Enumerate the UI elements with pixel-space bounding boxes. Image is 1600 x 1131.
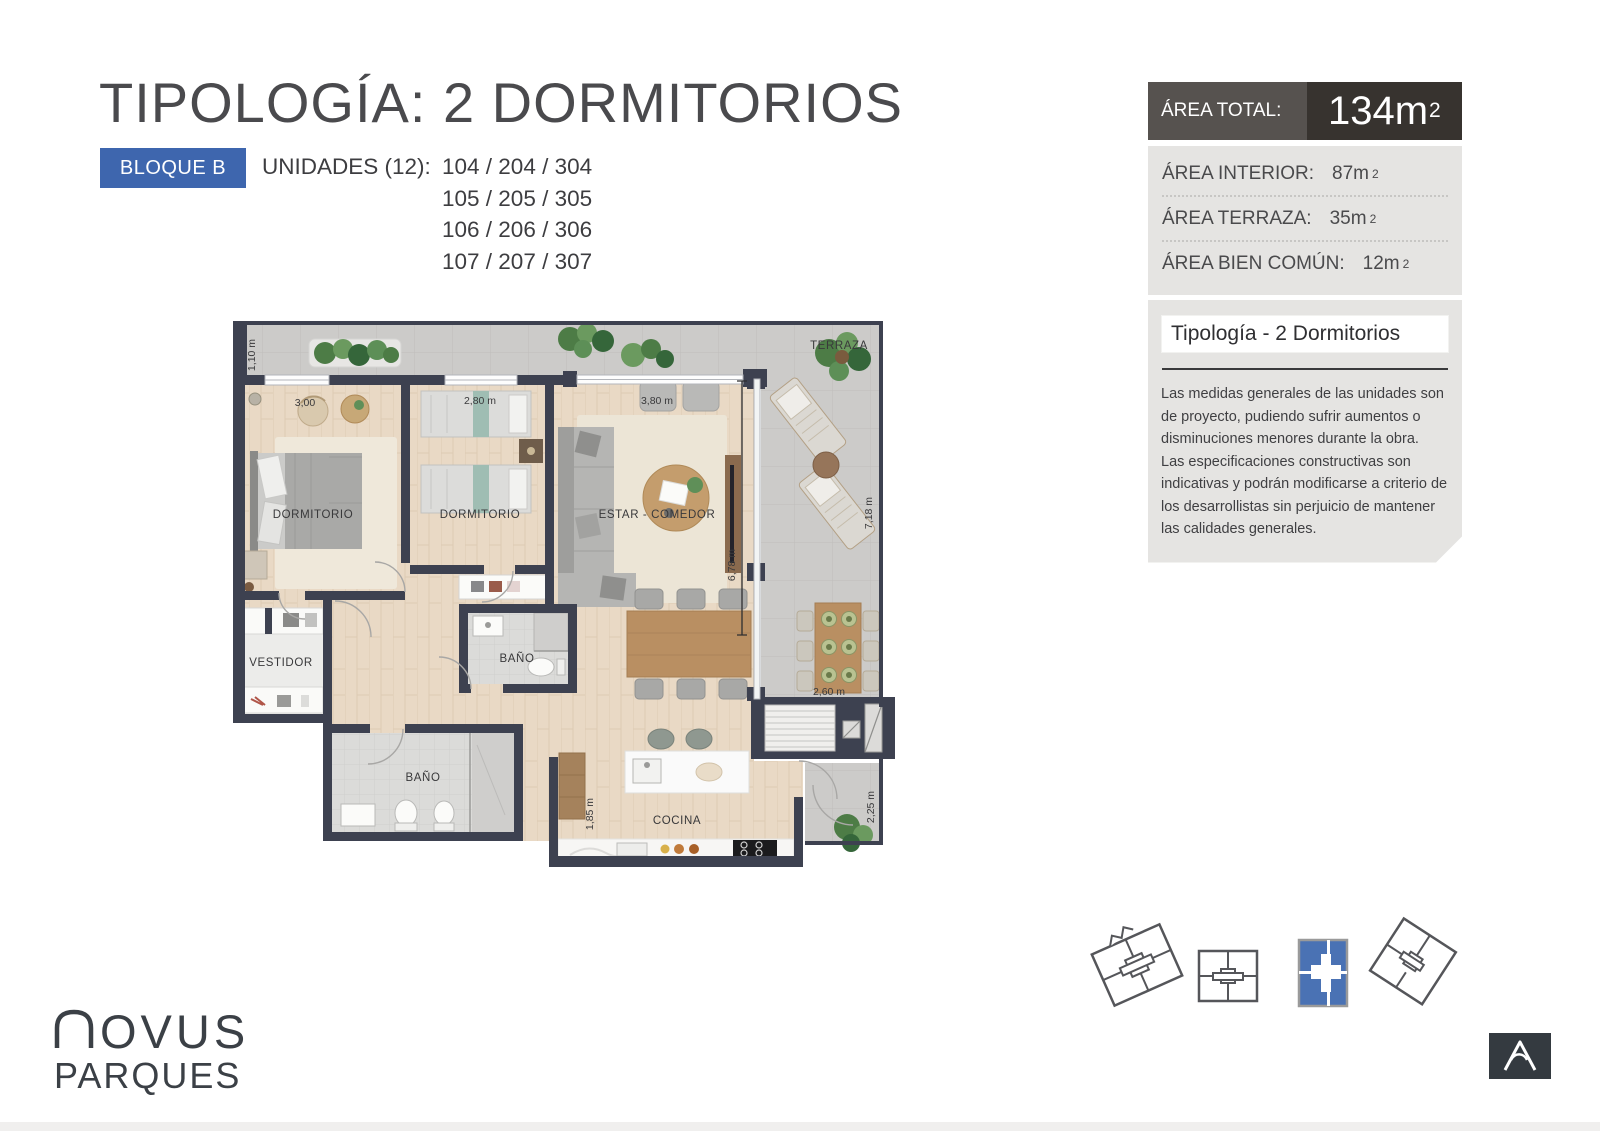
units-line: 106 / 206 / 306 bbox=[442, 214, 592, 246]
area-total-header: ÁREA TOTAL: 134m2 bbox=[1148, 82, 1462, 140]
page-edge-strip bbox=[0, 1122, 1600, 1131]
area-total-number: 134m bbox=[1328, 89, 1428, 134]
area-row-sup: 2 bbox=[1372, 167, 1379, 181]
developer-logo bbox=[1489, 1033, 1551, 1079]
disclaimer-text: Las medidas generales de las unidades so… bbox=[1161, 383, 1449, 541]
area-row-label: ÁREA INTERIOR: bbox=[1162, 163, 1314, 185]
dim-dorm2-width: 2,80 m bbox=[464, 395, 496, 407]
dim-estar-height: 6,78 m bbox=[726, 549, 738, 581]
bloque-outline-rotated-left-icon[interactable] bbox=[1082, 915, 1192, 1015]
novus-n-glyph bbox=[57, 1012, 91, 1048]
bloque-outline-upright-icon[interactable] bbox=[1196, 948, 1260, 1006]
units-line: 104 / 204 / 304 bbox=[442, 151, 592, 183]
area-total-sup: 2 bbox=[1429, 99, 1441, 123]
bloque-outline-rotated-right-icon[interactable] bbox=[1358, 915, 1468, 1015]
area-total-value: 134m2 bbox=[1307, 82, 1462, 140]
area-panel: ÁREA TOTAL: 134m2 ÁREA INTERIOR: 87m2 ÁR… bbox=[1148, 82, 1462, 295]
dim-estar-width: 3,80 m bbox=[641, 395, 673, 407]
area-row-sup: 2 bbox=[1370, 212, 1377, 226]
stairwell bbox=[751, 697, 895, 759]
room-label-bano-1: BAÑO bbox=[500, 652, 535, 665]
dim-dorm1-width: 3,00 bbox=[295, 397, 316, 409]
floorplan-drawing: TERRAZA DORMITORIO DORMITORIO ESTAR - CO… bbox=[225, 315, 905, 875]
brand-logo: OVUS PARQUES bbox=[50, 986, 270, 1101]
dim-kitchen-height: 1,85 m bbox=[584, 798, 596, 830]
room-label-bano-2: BAÑO bbox=[406, 771, 441, 784]
bloque-selected-icon[interactable] bbox=[1297, 938, 1349, 1008]
typology-info-box: Tipología - 2 Dormitorios Las medidas ge… bbox=[1148, 300, 1462, 563]
room-label-cocina: COCINA bbox=[653, 815, 701, 827]
page: TIPOLOGÍA: 2 DORMITORIOS BLOQUE B UNIDAD… bbox=[0, 0, 1600, 1131]
typology-title: Tipología - 2 Dormitorios bbox=[1161, 315, 1449, 353]
dim-terrace-lower: 2,25 m bbox=[865, 791, 877, 823]
disclaimer-paragraph-1: Las medidas generales de las unidades so… bbox=[1161, 383, 1449, 451]
area-row-value: 12m bbox=[1363, 253, 1400, 275]
units-list: UNIDADES (12): 104 / 204 / 304 105 / 205… bbox=[262, 151, 592, 277]
room-label-terraza: TERRAZA bbox=[810, 340, 868, 352]
dim-terrace-bottom: 2,60 m bbox=[813, 686, 845, 698]
room-label-dormitorio-2: DORMITORIO bbox=[440, 509, 521, 521]
units-line: 105 / 205 / 305 bbox=[442, 183, 592, 215]
area-row-sup: 2 bbox=[1403, 257, 1410, 271]
dim-terrace-right: 7,18 m bbox=[863, 497, 875, 529]
area-row-terraza: ÁREA TERRAZA: 35m2 bbox=[1162, 195, 1448, 240]
room-label-estar-comedor: ESTAR - COMEDOR bbox=[599, 509, 716, 521]
room-label-dormitorio-1: DORMITORIO bbox=[273, 509, 354, 521]
page-title: TIPOLOGÍA: 2 DORMITORIOS bbox=[99, 70, 903, 135]
area-breakdown: ÁREA INTERIOR: 87m2 ÁREA TERRAZA: 35m2 Á… bbox=[1148, 146, 1462, 295]
units-label: UNIDADES (12): bbox=[262, 151, 442, 277]
dining-furniture bbox=[627, 589, 751, 699]
disclaimer-paragraph-2: Las especificaciones constructivas son i… bbox=[1161, 451, 1449, 541]
area-row-label: ÁREA BIEN COMÚN: bbox=[1162, 253, 1345, 275]
area-row-value: 35m bbox=[1330, 208, 1367, 230]
area-total-label: ÁREA TOTAL: bbox=[1148, 82, 1307, 140]
area-row-value: 87m bbox=[1332, 163, 1369, 185]
floorplan: TERRAZA DORMITORIO DORMITORIO ESTAR - CO… bbox=[225, 315, 905, 875]
dim-terrace-left: 1,10 m bbox=[246, 339, 258, 371]
block-selector bbox=[1075, 915, 1475, 1015]
units-lines: 104 / 204 / 304 105 / 205 / 305 106 / 20… bbox=[442, 151, 592, 277]
brand-wordmark: OVUS bbox=[100, 1005, 249, 1058]
developer-logo-mark-icon bbox=[1489, 1033, 1551, 1079]
room-label-vestidor: VESTIDOR bbox=[249, 657, 313, 669]
area-row-label: ÁREA TERRAZA: bbox=[1162, 208, 1312, 230]
block-badge[interactable]: BLOQUE B bbox=[100, 148, 246, 188]
area-row-bien-comun: ÁREA BIEN COMÚN: 12m2 bbox=[1162, 240, 1448, 285]
units-line: 107 / 207 / 307 bbox=[442, 246, 592, 278]
divider bbox=[1162, 368, 1448, 370]
area-row-interior: ÁREA INTERIOR: 87m2 bbox=[1162, 152, 1448, 195]
brand-wordmark-line2: PARQUES bbox=[54, 1055, 241, 1096]
